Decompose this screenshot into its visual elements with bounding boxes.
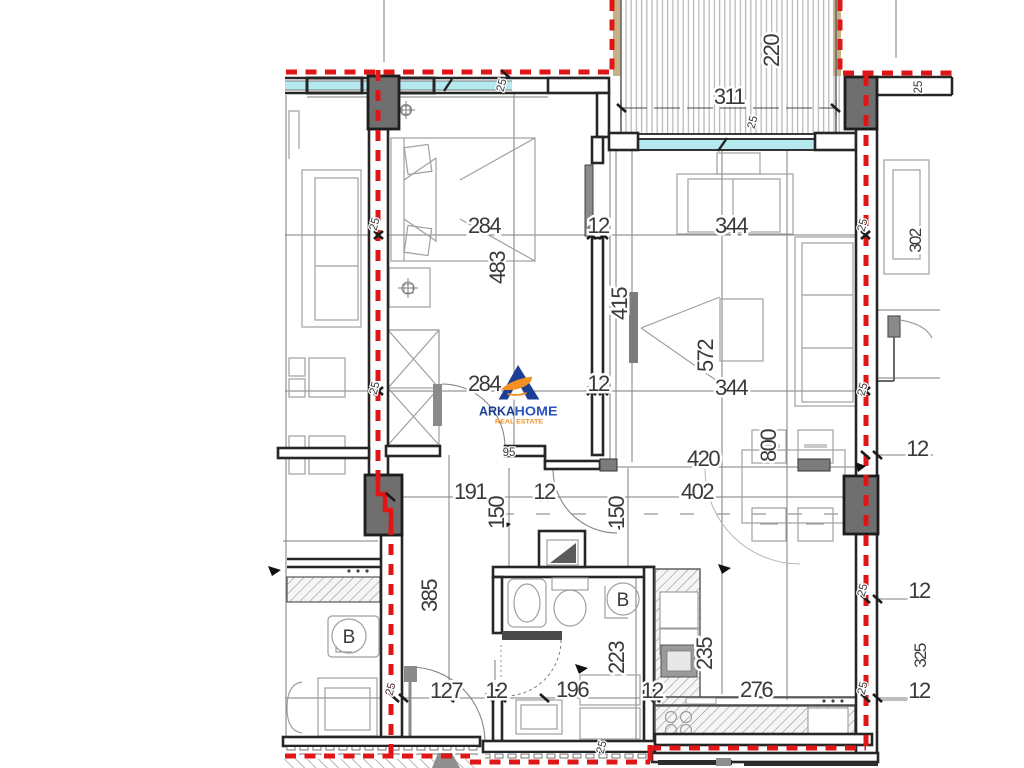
svg-text:127: 127 xyxy=(430,678,463,703)
svg-text:415: 415 xyxy=(607,287,632,320)
svg-text:ARKA: ARKA xyxy=(479,405,515,419)
svg-text:572: 572 xyxy=(693,339,718,372)
svg-text:284: 284 xyxy=(468,213,501,238)
svg-text:12: 12 xyxy=(906,436,929,461)
svg-text:483: 483 xyxy=(485,251,510,284)
svg-text:12: 12 xyxy=(587,371,610,396)
svg-text:12: 12 xyxy=(533,479,556,504)
svg-text:196: 196 xyxy=(556,677,589,702)
svg-text:12: 12 xyxy=(908,578,931,603)
svg-text:12: 12 xyxy=(587,213,610,238)
svg-text:B: B xyxy=(617,590,630,611)
svg-text:12: 12 xyxy=(641,678,664,703)
svg-text:150: 150 xyxy=(604,496,629,529)
svg-text:12: 12 xyxy=(485,678,508,703)
svg-text:311: 311 xyxy=(714,84,746,109)
svg-text:402: 402 xyxy=(681,479,714,504)
svg-text:25: 25 xyxy=(913,81,925,94)
svg-text:344: 344 xyxy=(715,375,748,400)
svg-text:344: 344 xyxy=(715,213,748,238)
svg-text:235: 235 xyxy=(692,637,717,670)
svg-text:12: 12 xyxy=(908,678,931,703)
svg-text:276: 276 xyxy=(740,677,773,702)
svg-text:150: 150 xyxy=(484,496,509,529)
svg-text:385: 385 xyxy=(417,579,442,612)
svg-text:284: 284 xyxy=(468,371,501,396)
svg-text:REAL ESTATE: REAL ESTATE xyxy=(495,419,544,426)
svg-text:420: 420 xyxy=(687,446,720,471)
svg-text:302: 302 xyxy=(906,228,925,253)
svg-text:191: 191 xyxy=(454,479,487,504)
svg-text:325: 325 xyxy=(911,643,930,668)
svg-text:800: 800 xyxy=(756,429,781,462)
svg-text:223: 223 xyxy=(604,641,629,674)
svg-text:B: B xyxy=(343,627,356,648)
svg-text:220: 220 xyxy=(759,34,784,67)
svg-text:95: 95 xyxy=(503,447,516,459)
svg-text:HOME: HOME xyxy=(515,405,558,419)
